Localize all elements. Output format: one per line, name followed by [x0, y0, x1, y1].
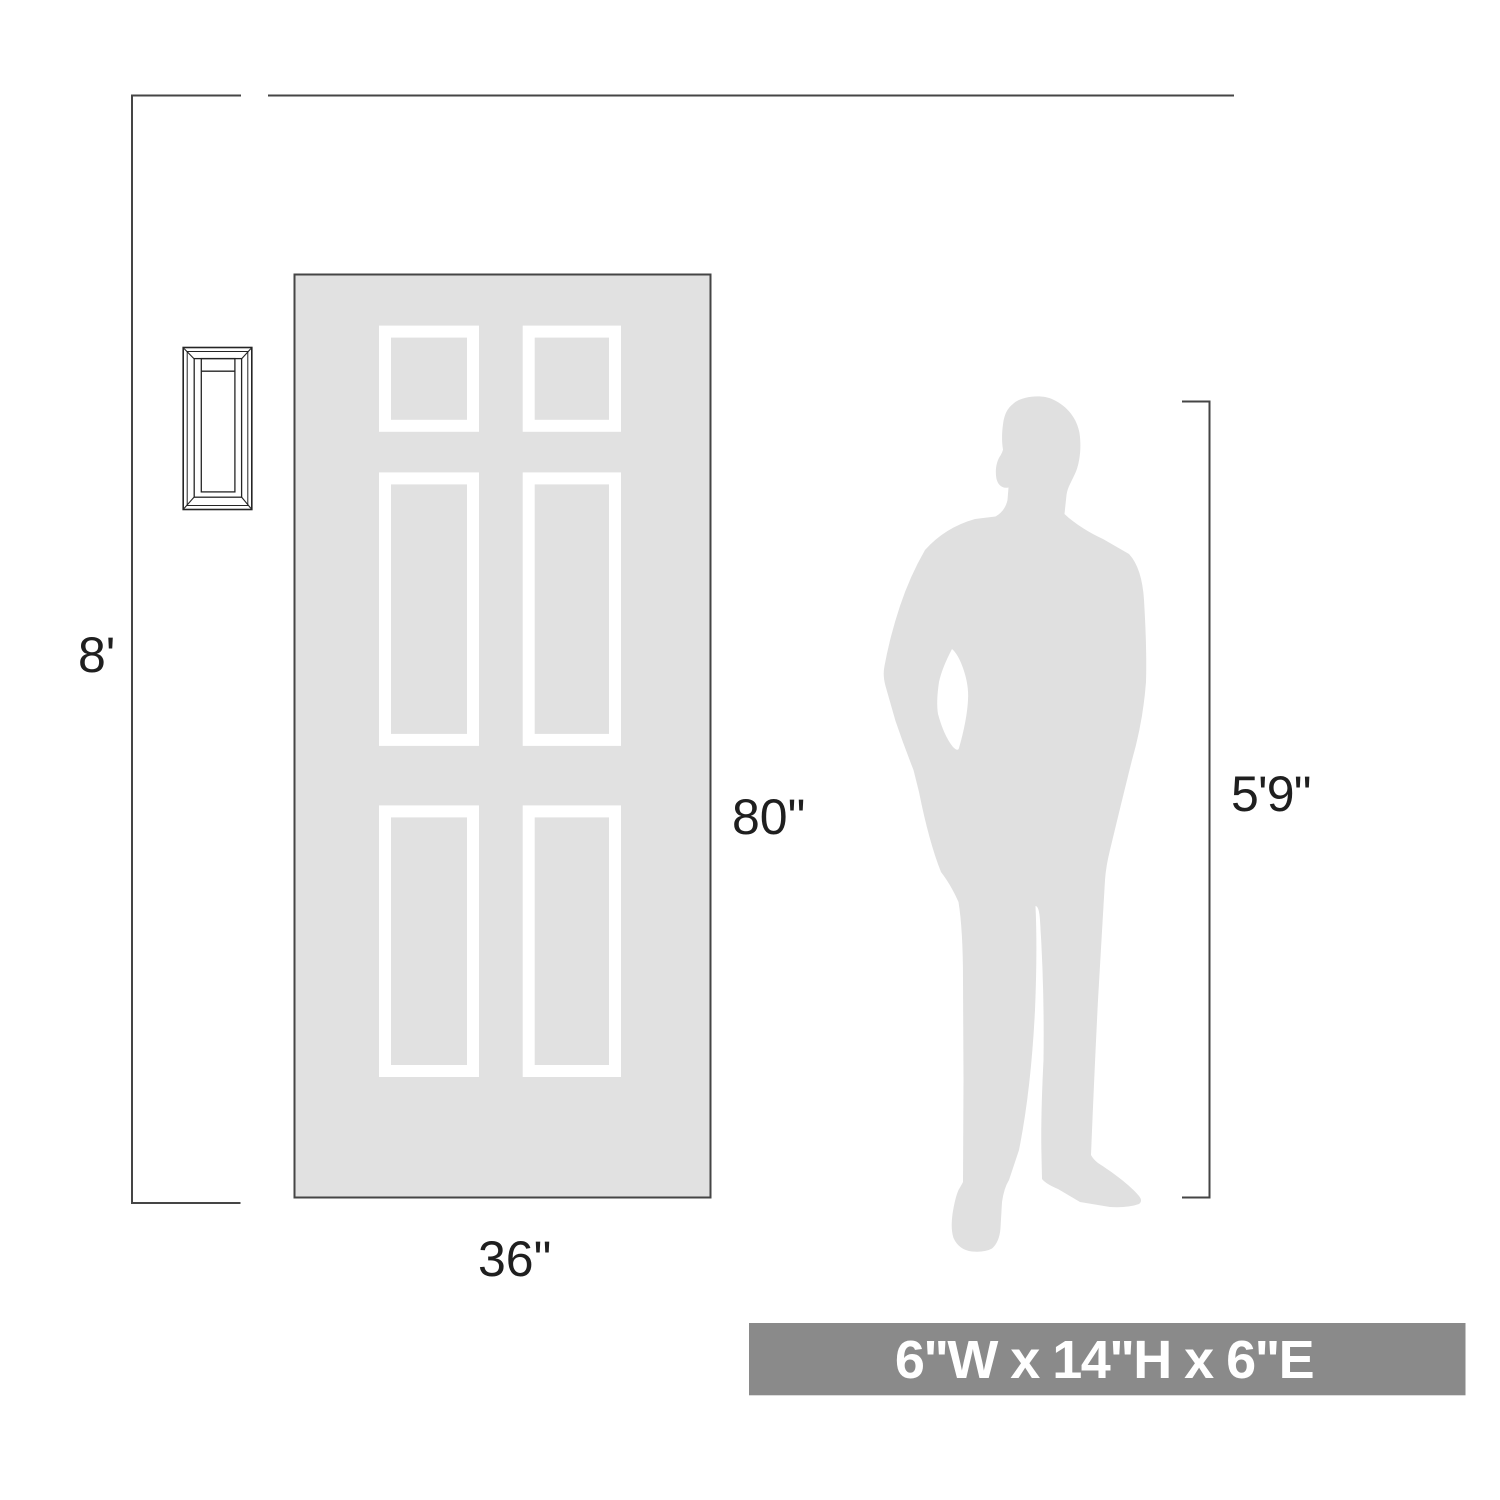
svg-text:8': 8'	[78, 627, 115, 683]
svg-text:6"W x 14"H x 6"E: 6"W x 14"H x 6"E	[895, 1330, 1313, 1390]
svg-text:5'9": 5'9"	[1231, 766, 1311, 822]
svg-text:36": 36"	[478, 1231, 551, 1287]
svg-text:80": 80"	[732, 789, 805, 845]
